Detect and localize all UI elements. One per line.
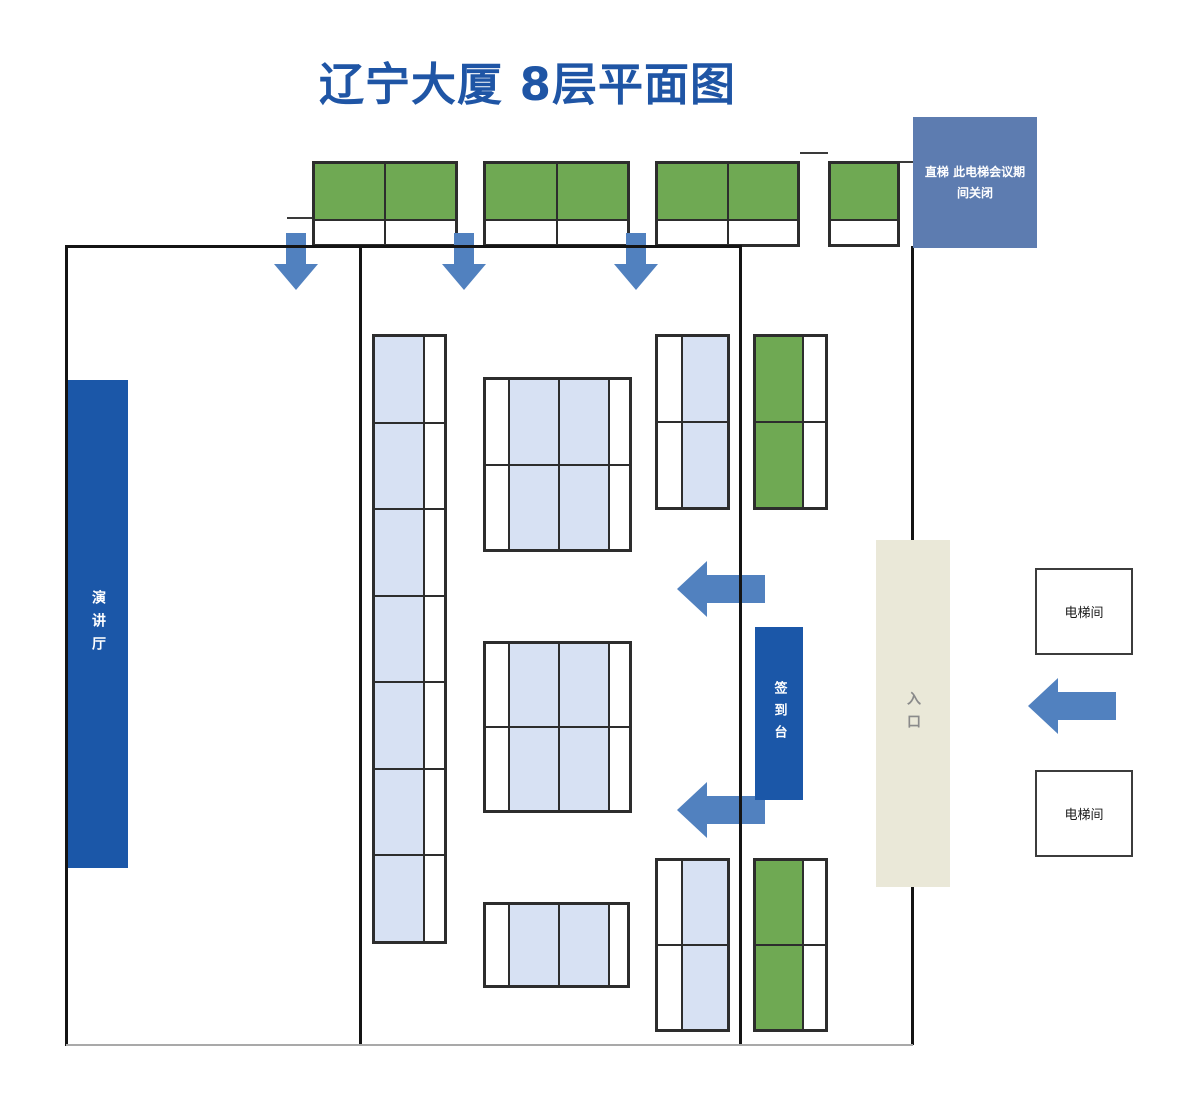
table-cell [485, 643, 509, 727]
table-cell [509, 379, 559, 465]
booth-cell [314, 163, 385, 220]
table-cell [657, 336, 682, 422]
arrow-head-icon [677, 782, 707, 838]
table-cell [755, 336, 803, 422]
arrow-shaft [454, 233, 474, 264]
wall-stub-right [900, 161, 913, 163]
table-cell [755, 422, 803, 508]
wall-middle-right [739, 246, 742, 1045]
elevator-closed-box: 直梯 此电梯会议期间关闭 [913, 117, 1037, 248]
table-cell [803, 945, 826, 1030]
table-cell [609, 643, 630, 727]
booth-cell [657, 220, 728, 245]
booth-cell [485, 163, 557, 220]
table-cell [424, 336, 445, 423]
booth-row-pair-2 [483, 161, 630, 247]
sign-in-desk: 签到台 [755, 627, 803, 800]
arrow-shaft [707, 575, 765, 603]
table-cell [374, 769, 424, 856]
table-cell [682, 860, 728, 945]
arrow-head-icon [677, 561, 707, 617]
down-arrow-1 [274, 233, 318, 290]
table-cell [509, 904, 559, 986]
booth-cell [385, 163, 456, 220]
booth-row-pair-1 [312, 161, 458, 247]
booth-row-single [828, 161, 900, 247]
table-cell [485, 727, 509, 811]
table-cell [657, 422, 682, 508]
center-table-middle [483, 641, 632, 813]
table-cell [374, 596, 424, 683]
table-cell [803, 860, 826, 945]
table-cell [485, 379, 509, 465]
arrow-shaft [626, 233, 646, 264]
booth-cell [657, 163, 728, 220]
elevator-closed-label: 直梯 此电梯会议期间关闭 [921, 162, 1029, 203]
seating-column [372, 334, 447, 944]
arrow-head-icon [1028, 678, 1058, 734]
elevator-room-label: 电梯间 [1064, 804, 1103, 823]
table-cell [803, 336, 826, 422]
elevator-room-top: 电梯间 [1035, 568, 1133, 655]
table-cell [755, 860, 803, 945]
table-cell [609, 379, 630, 465]
table-cell [559, 904, 609, 986]
table-cell [509, 643, 559, 727]
aisle-table-lower-right [753, 858, 828, 1032]
table-cell [682, 336, 728, 422]
table-cell [374, 423, 424, 510]
table-cell [509, 465, 559, 551]
entrance-label: 入口 [903, 691, 923, 737]
wall-stub-doorway [800, 152, 828, 154]
table-cell [374, 855, 424, 942]
lecture-hall-label: 演讲厅 [88, 590, 108, 659]
table-cell [559, 643, 609, 727]
aisle-table-upper-right [753, 334, 828, 510]
table-cell [559, 379, 609, 465]
booth-cell [314, 220, 385, 245]
floor-plan: 辽宁大厦 8层平面图 [0, 0, 1200, 1100]
booth-cell [557, 163, 629, 220]
wall-middle-left [359, 245, 362, 1045]
arrow-shaft [707, 796, 765, 824]
table-cell [609, 727, 630, 811]
table-cell [559, 465, 609, 551]
table-cell [374, 336, 424, 423]
table-cell [609, 904, 628, 986]
table-cell [682, 945, 728, 1030]
wall-stub-left [287, 217, 312, 219]
table-cell [485, 465, 509, 551]
booth-cell [830, 163, 898, 220]
booth-cell [830, 220, 898, 245]
table-cell [803, 422, 826, 508]
sign-in-desk-label: 签到台 [770, 681, 789, 747]
flow-arrow-lower [677, 782, 765, 838]
table-cell [424, 682, 445, 769]
table-cell [424, 423, 445, 510]
table-cell [424, 769, 445, 856]
arrow-head-icon [442, 264, 486, 290]
arrow-head-icon [614, 264, 658, 290]
table-cell [374, 682, 424, 769]
arrow-head-icon [274, 264, 318, 290]
entry-arrow [1028, 678, 1116, 734]
center-table-top [483, 377, 632, 552]
booth-cell [728, 220, 799, 245]
booth-cell [728, 163, 799, 220]
elevator-room-bottom: 电梯间 [1035, 770, 1133, 857]
wall-top [66, 245, 742, 248]
table-cell [657, 945, 682, 1030]
table-cell [424, 855, 445, 942]
table-cell [374, 509, 424, 596]
booth-row-pair-3 [655, 161, 800, 247]
table-cell [657, 860, 682, 945]
booth-cell [485, 220, 557, 245]
lecture-hall-bar: 演讲厅 [68, 380, 128, 868]
center-table-bottom [483, 902, 630, 988]
arrow-shaft [1058, 692, 1116, 720]
wall-bottom [66, 1044, 913, 1046]
entrance-strip: 入口 [876, 540, 950, 887]
arrow-shaft [286, 233, 306, 264]
table-cell [682, 422, 728, 508]
elevator-room-label: 电梯间 [1064, 602, 1103, 621]
aisle-table-upper-left [655, 334, 730, 510]
aisle-table-lower-left [655, 858, 730, 1032]
table-cell [509, 727, 559, 811]
table-cell [609, 465, 630, 551]
down-arrow-2 [442, 233, 486, 290]
flow-arrow-upper [677, 561, 765, 617]
page-title: 辽宁大厦 8层平面图 [0, 48, 1055, 113]
table-cell [424, 509, 445, 596]
table-cell [424, 596, 445, 683]
down-arrow-3 [614, 233, 658, 290]
table-cell [559, 727, 609, 811]
table-cell [485, 904, 509, 986]
table-cell [755, 945, 803, 1030]
